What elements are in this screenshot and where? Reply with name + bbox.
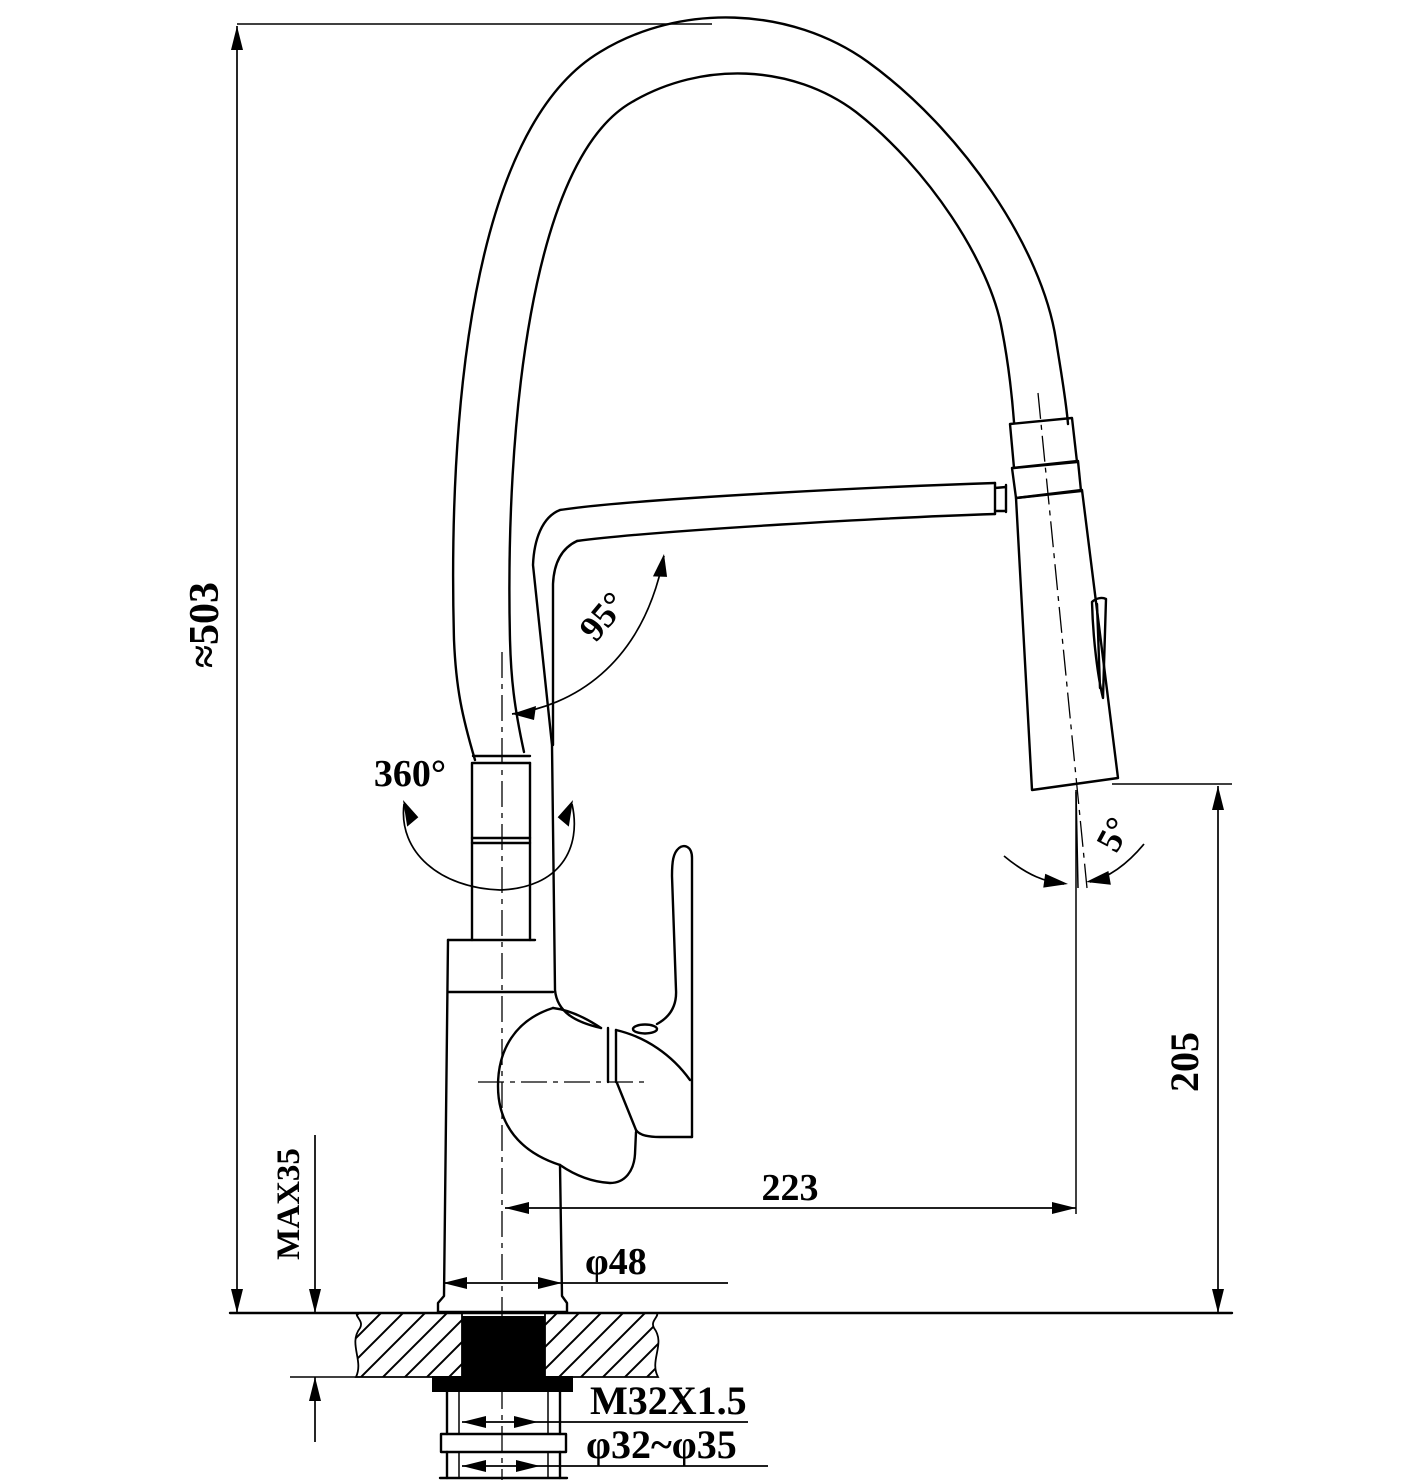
dim-hole-diameter: φ32~φ35 bbox=[462, 1422, 768, 1472]
technical-drawing-canvas: ≈503 205 223 MAX35 φ48 M32X1.5 bbox=[0, 0, 1419, 1480]
spray-body bbox=[1016, 490, 1118, 790]
spout-angle-label: 95° bbox=[571, 584, 634, 648]
spray-clip bbox=[1092, 598, 1106, 698]
dim-outlet-height: 205 bbox=[1112, 784, 1232, 1313]
countertop-section bbox=[230, 1313, 1232, 1377]
swivel-rotation-arc bbox=[403, 804, 574, 890]
spout-end-cap bbox=[995, 483, 1006, 514]
handle-lever bbox=[608, 846, 692, 1137]
hose-inner-curve bbox=[509, 73, 1014, 752]
spout-bend-inner bbox=[553, 541, 577, 745]
dim-base-diameter: φ48 bbox=[443, 1241, 728, 1289]
overall-height-label: ≈503 bbox=[182, 582, 228, 668]
hose-outer-curve bbox=[453, 17, 1068, 760]
mounting-thread-label: M32X1.5 bbox=[590, 1378, 747, 1423]
spray-head bbox=[1010, 418, 1118, 790]
annotation-swivel: 360° bbox=[374, 753, 579, 890]
swivel-label: 360° bbox=[374, 753, 446, 795]
dim-deck-thickness: MAX35 bbox=[271, 1135, 321, 1442]
outlet-height-label: 205 bbox=[1162, 1032, 1207, 1092]
counter-hatch-left bbox=[355, 1313, 462, 1377]
head-tilt-label: 5° bbox=[1088, 811, 1139, 858]
spout-tube-top bbox=[560, 483, 995, 510]
base-diameter-label: φ48 bbox=[585, 1241, 647, 1283]
annotation-spout-angle: 95° bbox=[512, 553, 671, 720]
mounting-nut bbox=[462, 1316, 545, 1377]
threaded-shank bbox=[440, 1392, 567, 1478]
spout-tube-bottom bbox=[577, 514, 995, 541]
annotation-head-tilt: 5° bbox=[1004, 790, 1144, 891]
swivel-neck bbox=[448, 756, 535, 940]
hole-diameter-label: φ32~φ35 bbox=[586, 1422, 737, 1467]
reach-label: 223 bbox=[762, 1167, 819, 1209]
dim-reach: 223 bbox=[505, 792, 1076, 1214]
faucet-outline bbox=[438, 17, 1118, 1312]
counter-hatch-right bbox=[545, 1313, 658, 1377]
faucet-body bbox=[438, 846, 692, 1312]
deck-thickness-label: MAX35 bbox=[271, 1148, 307, 1260]
faucet-technical-drawing: ≈503 205 223 MAX35 φ48 M32X1.5 bbox=[0, 0, 1419, 1480]
valve-dome bbox=[498, 1008, 560, 1165]
spout-bend-outer bbox=[533, 510, 601, 1028]
